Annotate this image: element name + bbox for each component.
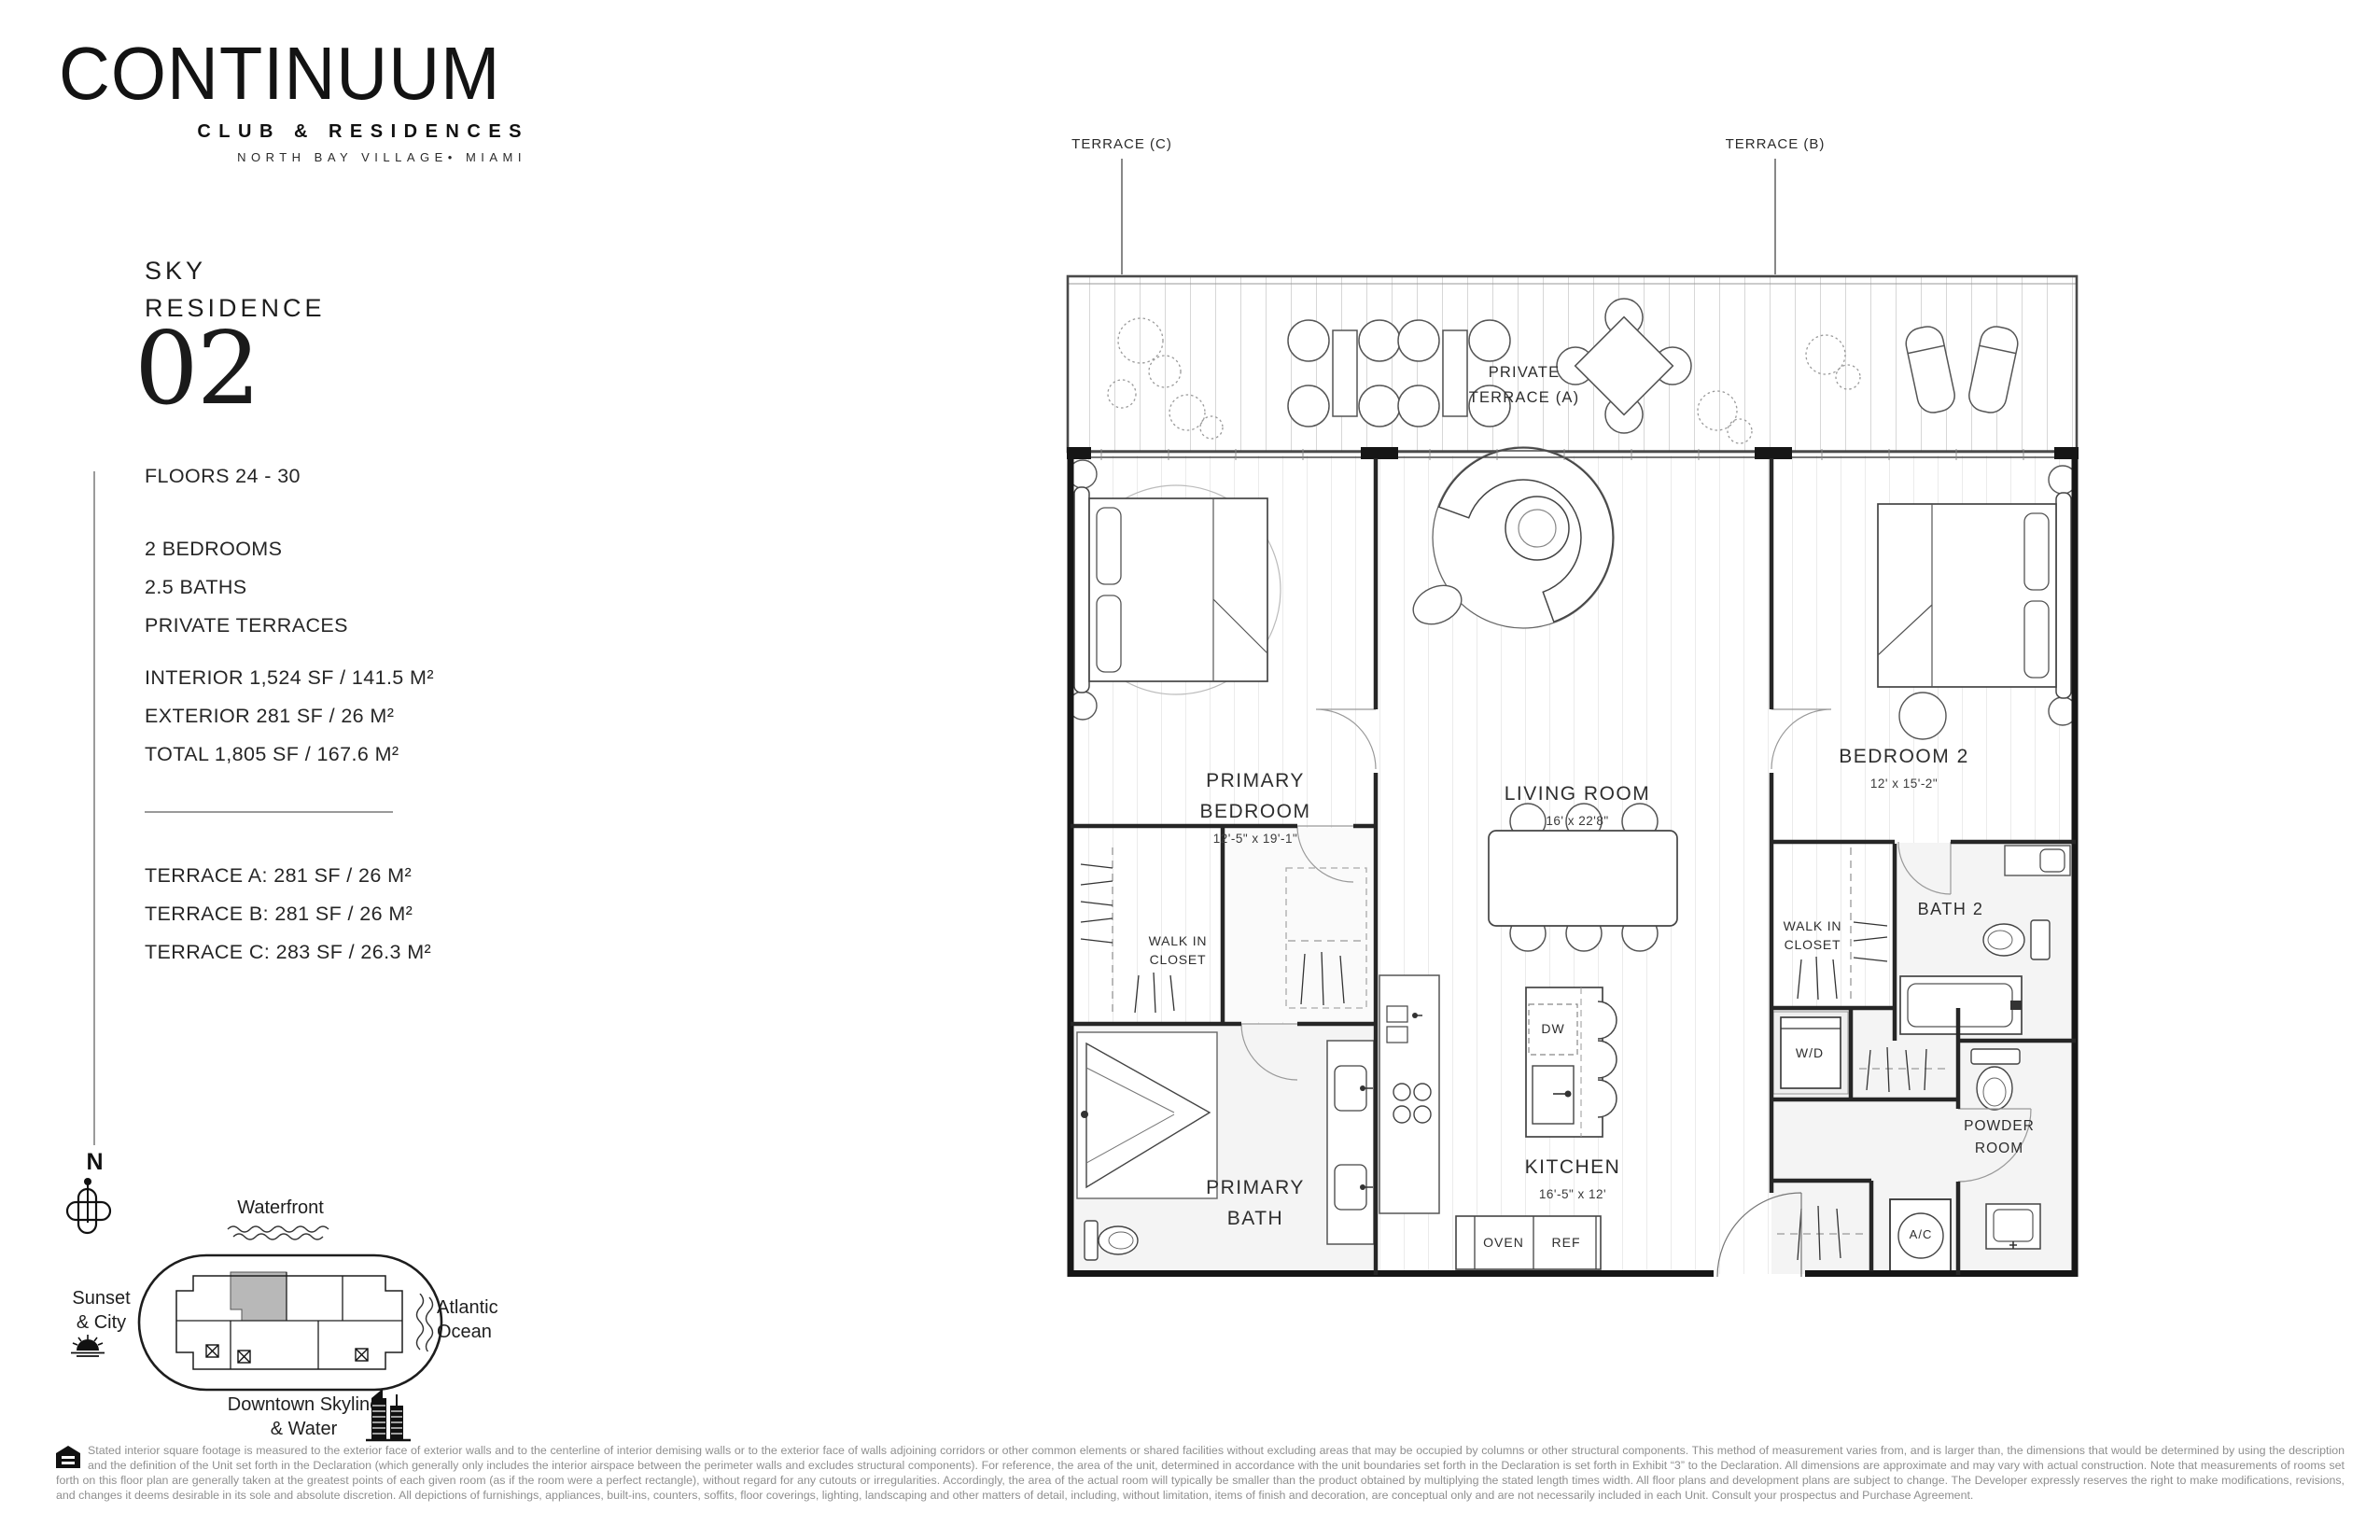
sunset-line1: Sunset bbox=[52, 1286, 150, 1310]
floorplan-drawing bbox=[1064, 131, 2081, 1288]
walkin-closet-right-label: WALK IN CLOSET bbox=[1784, 917, 1842, 954]
feature-bedrooms: 2 BEDROOMS bbox=[145, 530, 348, 568]
powder-sink bbox=[1986, 1204, 2040, 1249]
wd-label: W/D bbox=[1796, 1045, 1824, 1060]
shower bbox=[1077, 1032, 1217, 1198]
terrace-b-label: TERRACE (B) bbox=[1726, 136, 1826, 152]
floorplan: TERRACE (C) TERRACE (B) PRIVATE TERRACE … bbox=[1064, 131, 2081, 1288]
feature-terraces: PRIVATE TERRACES bbox=[145, 607, 348, 645]
compass-icon bbox=[65, 1174, 112, 1243]
skyline-icon bbox=[366, 1385, 411, 1443]
downtown-line1: Downtown Skyline bbox=[227, 1393, 381, 1417]
sunset-city-label: Sunset & City bbox=[52, 1286, 150, 1335]
bath2-label: BATH 2 bbox=[1918, 900, 1984, 919]
building-keyplan bbox=[135, 1252, 445, 1393]
sunset-line2: & City bbox=[52, 1310, 150, 1335]
north-label: N bbox=[77, 1149, 114, 1176]
bedroom2-label: BEDROOM 2 12' x 15'-2" bbox=[1839, 741, 1969, 791]
powder-room-label: POWDER ROOM bbox=[1964, 1115, 2035, 1160]
bar-stools bbox=[1598, 1001, 1617, 1117]
terrace-c-area: TERRACE C: 283 SF / 26.3 M² bbox=[145, 933, 431, 972]
terrace-leader-lines bbox=[1122, 159, 1775, 274]
equal-housing-icon bbox=[56, 1446, 80, 1468]
atlantic-line2: Ocean bbox=[437, 1320, 549, 1344]
primary-bedroom-dims: 12'-5" x 19'-1" bbox=[1199, 832, 1310, 846]
terrace-areas-list: TERRACE A: 281 SF / 26 M² TERRACE B: 281… bbox=[145, 857, 431, 972]
atlantic-ocean-label: Atlantic Ocean bbox=[437, 1295, 549, 1344]
horizontal-rule bbox=[145, 811, 393, 813]
brand-location: NORTH BAY VILLAGE• MIAMI bbox=[59, 150, 526, 164]
primary-bedroom-label: PRIMARY BEDROOM 12'-5" x 19'-1" bbox=[1199, 765, 1310, 846]
feature-baths: 2.5 BATHS bbox=[145, 568, 348, 607]
areas-list: INTERIOR 1,524 SF / 141.5 M² EXTERIOR 28… bbox=[145, 659, 434, 774]
downtown-label: Downtown Skyline & Water bbox=[227, 1393, 381, 1441]
bathtub bbox=[1900, 976, 2022, 1034]
floors-range: FLOORS 24 - 30 bbox=[145, 465, 301, 488]
terrace-a-area: TERRACE A: 281 SF / 26 M² bbox=[145, 857, 431, 895]
walkin-closet-left-label: WALK IN CLOSET bbox=[1149, 931, 1208, 969]
oven-label: OVEN bbox=[1483, 1235, 1524, 1250]
bedroom2-dims: 12' x 15'-2" bbox=[1839, 777, 1969, 791]
waterfront-label: Waterfront bbox=[213, 1196, 348, 1220]
brand-tagline: CLUB & RESIDENCES bbox=[59, 121, 529, 143]
dw-label: DW bbox=[1541, 1021, 1564, 1036]
terrace-b-area: TERRACE B: 281 SF / 26 M² bbox=[145, 895, 431, 933]
ref-label: REF bbox=[1552, 1235, 1581, 1250]
terrace-c-label: TERRACE (C) bbox=[1071, 136, 1172, 152]
downtown-line2: & Water bbox=[227, 1417, 381, 1441]
living-room-label: LIVING ROOM 16' x 22'8" bbox=[1505, 778, 1651, 828]
sunset-icon bbox=[71, 1335, 105, 1357]
brand-block: CONTINUUM CLUB & RESIDENCES NORTH BAY VI… bbox=[59, 37, 522, 164]
atlantic-line1: Atlantic bbox=[437, 1295, 549, 1320]
primary-bath-label: PRIMARY BATH bbox=[1206, 1172, 1305, 1234]
features-list: 2 BEDROOMS 2.5 BATHS PRIVATE TERRACES bbox=[145, 530, 348, 645]
living-room-dims: 16' x 22'8" bbox=[1505, 814, 1651, 828]
private-terrace-label: PRIVATE TERRACE (A) bbox=[1469, 360, 1580, 411]
brochure-page: CONTINUUM CLUB & RESIDENCES NORTH BAY VI… bbox=[0, 0, 2380, 1540]
residence-number: 02 bbox=[134, 319, 259, 420]
residence-type-line1: SKY bbox=[145, 252, 326, 289]
area-exterior: EXTERIOR 281 SF / 26 M² bbox=[145, 697, 434, 735]
legal-disclaimer: Stated interior square footage is measur… bbox=[56, 1444, 2345, 1504]
disclaimer-text: Stated interior square footage is measur… bbox=[56, 1444, 2345, 1502]
ac-label: A/C bbox=[1910, 1227, 1933, 1241]
brand-logo: CONTINUUM bbox=[59, 37, 522, 112]
area-interior: INTERIOR 1,524 SF / 141.5 M² bbox=[145, 659, 434, 697]
waterfront-waves-icon bbox=[226, 1225, 338, 1241]
ocean-waves-icon bbox=[414, 1294, 435, 1351]
primary-bed bbox=[1069, 460, 1281, 720]
kitchen-label: KITCHEN 16'-5" x 12' bbox=[1525, 1152, 1621, 1201]
vertical-rule bbox=[93, 471, 95, 1145]
area-total: TOTAL 1,805 SF / 167.6 M² bbox=[145, 735, 434, 774]
kitchen-dims: 16'-5" x 12' bbox=[1525, 1187, 1621, 1201]
